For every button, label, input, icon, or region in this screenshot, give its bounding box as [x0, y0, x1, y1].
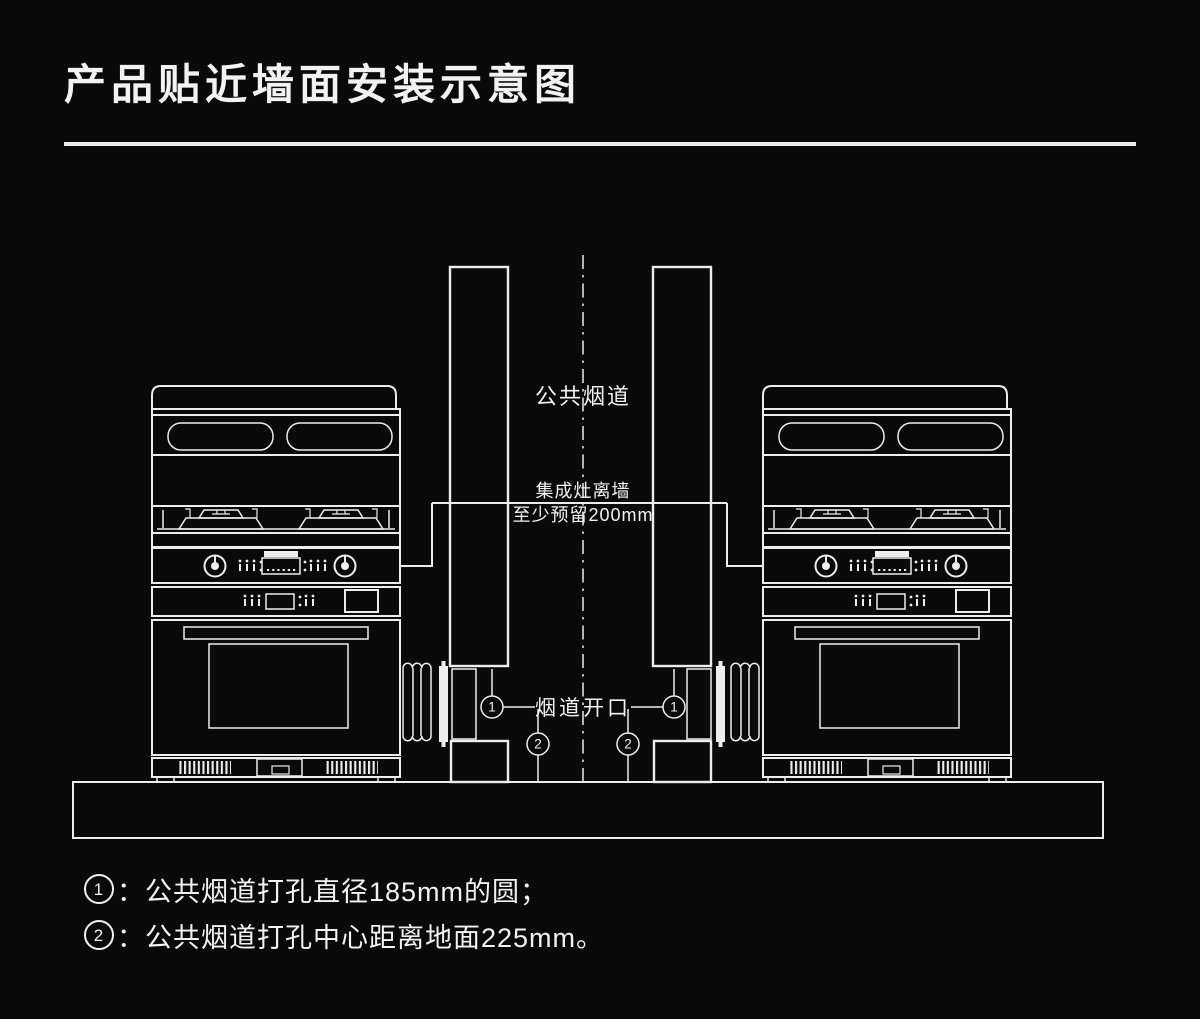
- flue-wall-left: [450, 267, 508, 666]
- exhaust-duct-right: [731, 663, 759, 740]
- damper-plate-right: [716, 661, 725, 747]
- page: 产品贴近墙面安装示意图: [0, 0, 1200, 1019]
- flue-wall-left-base: [451, 741, 508, 782]
- opening-pier-right: [687, 669, 711, 739]
- damper-plate-left: [439, 661, 448, 747]
- footnote-2-text: ：公共烟道打孔中心距离地面225mm。: [117, 916, 604, 955]
- footnote-1: 1 ：公共烟道打孔直径185mm的圆；: [84, 872, 604, 906]
- flue-wall-right: [653, 267, 711, 666]
- clearance-label-line2: 至少预留200mm: [512, 505, 653, 525]
- marker-2-left: 2: [527, 733, 549, 755]
- flue-wall-right-base: [654, 741, 711, 782]
- footnote-1-text: ：公共烟道打孔直径185mm的圆；: [117, 870, 548, 909]
- svg-text:2: 2: [624, 737, 632, 752]
- flue-label: 公共烟道: [535, 384, 631, 409]
- footnote-2-marker: 2: [84, 920, 114, 950]
- installation-diagram: 1 1 2 2 公共烟道 集成灶离墙 至少预留200mm 烟道开口: [0, 0, 1200, 1019]
- right-stove: [763, 386, 1011, 782]
- opening-pier-left: [452, 669, 476, 739]
- marker-1-left: 1: [481, 696, 503, 718]
- marker-2-right: 2: [617, 733, 639, 755]
- footnote-1-marker: 1: [84, 874, 114, 904]
- svg-text:1: 1: [488, 700, 496, 715]
- footnote-2: 2 ：公共烟道打孔中心距离地面225mm。: [84, 918, 604, 952]
- marker-1-right: 1: [663, 696, 685, 718]
- exhaust-duct-left: [403, 663, 431, 740]
- svg-text:2: 2: [534, 737, 542, 752]
- left-stove: [152, 386, 400, 782]
- footnotes: 1 ：公共烟道打孔直径185mm的圆； 2 ：公共烟道打孔中心距离地面225mm…: [84, 872, 604, 964]
- svg-text:1: 1: [670, 700, 678, 715]
- clearance-label-line1: 集成灶离墙: [536, 481, 631, 501]
- floor: [73, 782, 1103, 838]
- opening-label: 烟道开口: [535, 697, 631, 720]
